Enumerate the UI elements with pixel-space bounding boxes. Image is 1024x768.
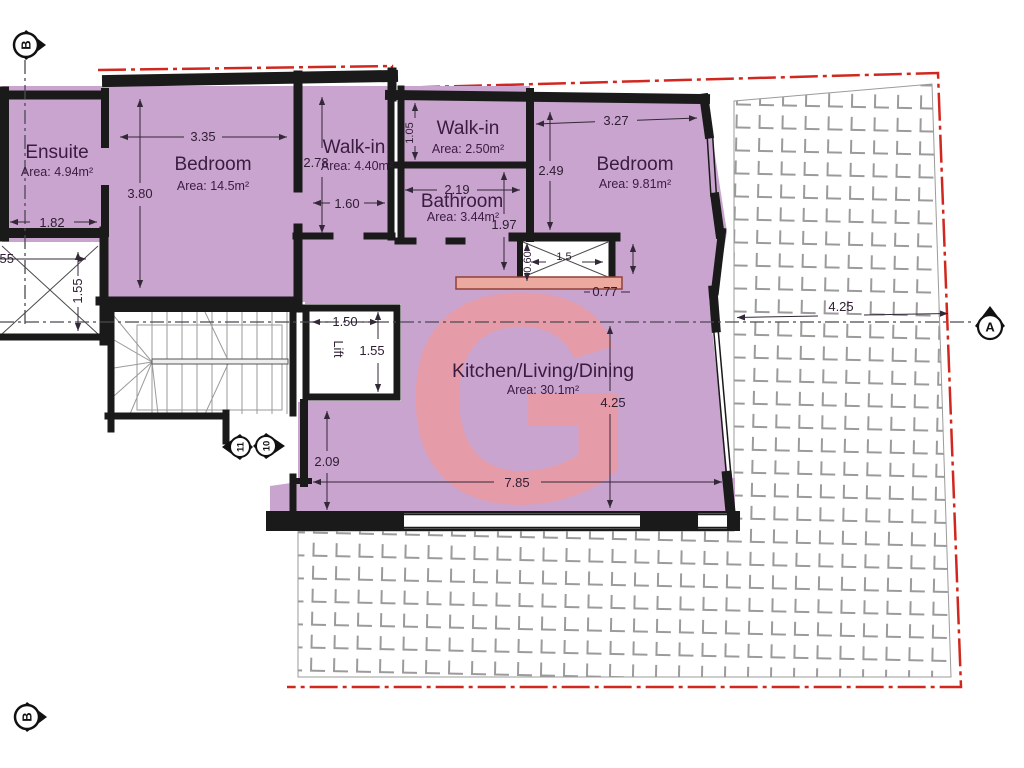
dim-kitchen-side: 2.09 — [314, 454, 339, 469]
room-label-walkin1: Walk-in — [323, 137, 386, 158]
room-area-ensuite: Area: 4.94m² — [21, 165, 93, 179]
dim-bedroom1-width: 3.35 — [190, 129, 215, 144]
room-area-bedroom1: Area: 14.5m² — [177, 179, 249, 193]
room-label-lift: Lift — [331, 340, 346, 358]
dim-walkin1-width: 1.60 — [334, 196, 359, 211]
dim-shaft-left-width: 1.55 — [0, 251, 14, 266]
room-label-kitchen: Kitchen/Living/Dining — [452, 360, 634, 382]
room-label-walkin2: Walk-in — [437, 118, 500, 139]
dim-shaft-mid-height: 0.60 — [522, 251, 534, 272]
room-area-kitchen: Area: 30.1m² — [507, 383, 579, 397]
dim-shaft-mid-gap: 0.77 — [592, 284, 617, 299]
room-area-walkin2: Area: 2.50m² — [432, 142, 504, 156]
dim-bedroom1-height: 3.80 — [127, 186, 152, 201]
room-area-bathroom: Area: 3.44m² — [427, 210, 499, 224]
floor-plan-page: G 3.35 3.80 1.82 1.55 1.55 — [0, 0, 1024, 768]
dim-walkin2-height: 1.05 — [404, 122, 416, 143]
dim-lift-height: 1.55 — [359, 343, 384, 358]
room-label-bathroom: Bathroom — [421, 191, 503, 212]
floor-plan-svg: G 3.35 3.80 1.82 1.55 1.55 — [0, 0, 1024, 768]
stair-marker-11-label: 11 — [236, 441, 247, 452]
stair-marker-10-label: 10 — [262, 441, 273, 452]
dim-kitchen-width: 7.85 — [504, 475, 529, 490]
section-marker-b-bottom: B — [14, 702, 47, 732]
dim-lift-width: 1.50 — [332, 314, 357, 329]
dim-kitchen-height: 4.25 — [600, 395, 625, 410]
dim-shaft-left-height: 1.55 — [70, 278, 85, 303]
section-marker-b-top: B — [13, 30, 46, 60]
room-area-walkin1: Area: 4.40m² — [321, 159, 393, 173]
section-marker-b-top-label: B — [19, 40, 34, 49]
elevation-marker-a: A — [975, 306, 1005, 339]
dim-terrace-width: 4.25 — [828, 299, 853, 314]
stair-handrail — [152, 359, 288, 364]
dim-bedroom2-height: 2.49 — [538, 163, 563, 178]
section-marker-b-bottom-label: B — [20, 712, 35, 721]
room-label-bedroom2: Bedroom — [596, 154, 673, 175]
room-label-ensuite: Ensuite — [25, 142, 88, 163]
dim-shaft-mid-width: 1.5 — [556, 251, 571, 263]
room-label-bedroom1: Bedroom — [174, 154, 251, 175]
room-area-bedroom2: Area: 9.81m² — [599, 177, 671, 191]
stair-marker-10: 10 — [253, 433, 285, 459]
dim-ensuite-width: 1.82 — [39, 215, 64, 230]
dim-bedroom2-width: 3.27 — [603, 113, 628, 128]
elevation-marker-a-label: A — [985, 320, 995, 335]
